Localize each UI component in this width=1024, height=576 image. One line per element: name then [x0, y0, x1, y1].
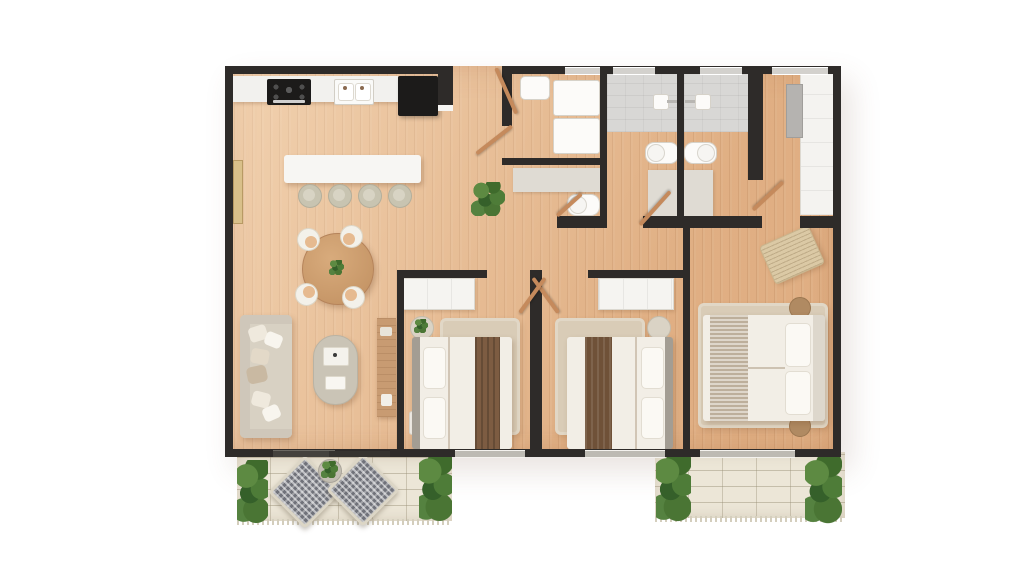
master-pillow-1: [785, 323, 811, 367]
planter-plant: [321, 461, 338, 478]
coffee-table: [313, 335, 358, 405]
window-bathroom1: [613, 67, 655, 75]
closet-wardrobe: [800, 68, 834, 215]
wall-powder-bath1: [600, 66, 607, 228]
wall-powder-south: [557, 216, 607, 228]
master-headboard: [812, 315, 825, 421]
tray-item: [333, 353, 337, 357]
closet-dresser-panel: [786, 84, 803, 138]
master-crease: [748, 367, 785, 369]
kitchen-island: [284, 155, 421, 183]
master-bench: [759, 225, 825, 285]
sliding-door-panel-1: [273, 450, 335, 457]
coffee-table-books: [325, 376, 346, 390]
wall-kitchen-stub: [438, 66, 453, 105]
bedroom1-pillow-1: [423, 347, 446, 389]
bedroom2-pillow-2: [641, 397, 664, 439]
wall-west: [225, 66, 233, 457]
bedroom2-runner: [585, 337, 612, 449]
bar-stool-1: [298, 184, 322, 208]
wall-kitchen-stub-cap: [438, 105, 453, 111]
floorplan-render: [0, 0, 1024, 576]
bedroom1-pillow-2: [423, 397, 446, 439]
wall-bath2-closet: [748, 66, 763, 180]
bathroom1-toilet-seat: [647, 144, 665, 162]
dining-chair-ne: [340, 225, 363, 248]
master-runner: [710, 315, 748, 421]
window-master: [700, 450, 795, 458]
bedroom2-bed: [567, 337, 673, 449]
bedroom1-nightstand-plant: [414, 319, 428, 333]
wall-master-west: [683, 228, 690, 449]
window-closet: [772, 67, 828, 75]
bathroom2-shower-head: [695, 94, 711, 110]
wall-closet-south: [800, 216, 833, 228]
bedroom1-sheet-fold: [448, 337, 450, 449]
bedroom2-sheet-fold: [635, 337, 637, 449]
bedroom1-runner: [475, 337, 500, 449]
wall-bedroom1-north: [397, 270, 487, 278]
wall-laundry-powder: [502, 158, 607, 165]
wall-bedroom2-north: [588, 270, 683, 278]
wall-bedroom1-west: [397, 270, 404, 449]
laundry-door-leaf: [475, 124, 513, 155]
sofa-arm-top: [240, 315, 292, 324]
console-decor-2: [381, 394, 392, 406]
wall-bath-divider: [677, 66, 684, 228]
bathroom2-shower: [684, 74, 748, 132]
patio-right-shrub-west: [656, 454, 691, 522]
bar-stool-3: [358, 184, 382, 208]
dryer: [553, 118, 600, 154]
bar-stool-4: [388, 184, 412, 208]
window-laundry: [565, 67, 600, 75]
patio-left-shrub-east: [419, 454, 452, 522]
bathroom2-toilet-seat: [697, 144, 715, 162]
bathroom2-vanity: [684, 170, 713, 216]
sofa-arm-bottom: [240, 429, 292, 438]
master-pillow-2: [785, 371, 811, 415]
window-bedroom2: [585, 450, 665, 458]
bedroom1-wardrobe: [402, 278, 475, 310]
patio-right-shrub-east: [805, 456, 842, 524]
bedroom2-headboard: [665, 337, 673, 449]
master-bed: [703, 315, 825, 421]
bedroom1-bed: [412, 337, 512, 449]
wall-mirror: [233, 160, 243, 224]
wall-bath-south: [643, 216, 762, 228]
window-bedroom1: [455, 450, 525, 458]
dining-chair-se: [342, 286, 365, 309]
entry-plant: [471, 182, 505, 216]
utility-sink: [520, 76, 550, 100]
dining-table-plant: [329, 260, 344, 275]
sliding-door-panel-2: [329, 451, 390, 457]
bathroom1-shower-pipe: [667, 100, 677, 103]
window-bathroom2: [700, 67, 742, 75]
apartment-floor-plan: [225, 66, 841, 457]
faucet-left: [343, 86, 347, 90]
wall-east: [833, 66, 841, 457]
bedroom2-wardrobe: [598, 278, 674, 310]
bar-stool-2: [328, 184, 352, 208]
faucet-right: [360, 86, 364, 90]
wall-top-west: [225, 66, 453, 74]
bedroom1-headboard: [412, 337, 420, 449]
cooktop-controls: [273, 100, 305, 103]
bathroom2-door-leaf: [752, 181, 785, 212]
bedroom2-pillow-1: [641, 347, 664, 389]
refrigerator: [398, 76, 438, 116]
patio-left-shrub-west: [237, 460, 268, 524]
dining-chair-sw: [295, 283, 318, 306]
sofa-pillow-3: [250, 348, 270, 366]
bathroom2-shower-pipe: [685, 100, 695, 103]
dining-chair-nw: [297, 228, 320, 251]
console-decor-1: [380, 327, 392, 336]
washer: [553, 80, 600, 116]
powder-vanity: [513, 168, 600, 192]
